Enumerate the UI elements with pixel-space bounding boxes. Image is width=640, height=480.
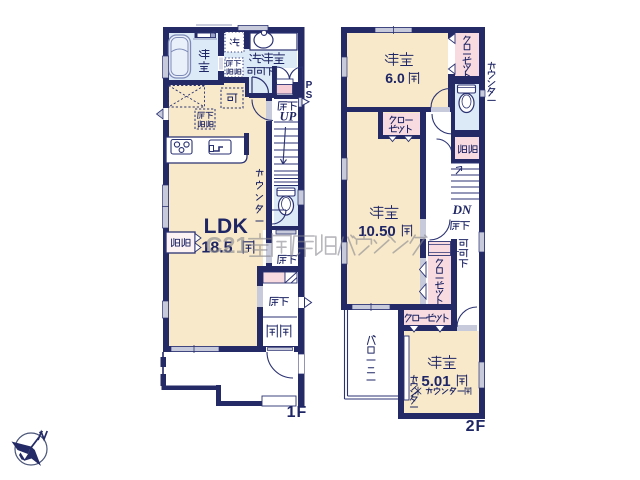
svg-text:6.0: 6.0 bbox=[385, 70, 405, 86]
svg-text:UP: UP bbox=[280, 110, 297, 124]
svg-text:2F: 2F bbox=[466, 418, 487, 435]
svg-text:DN: DN bbox=[452, 202, 472, 217]
svg-text:5.01: 5.01 bbox=[421, 373, 450, 390]
svg-text:1F: 1F bbox=[287, 404, 308, 421]
svg-text:C21: C21 bbox=[205, 232, 248, 258]
svg-text:S: S bbox=[306, 90, 313, 101]
